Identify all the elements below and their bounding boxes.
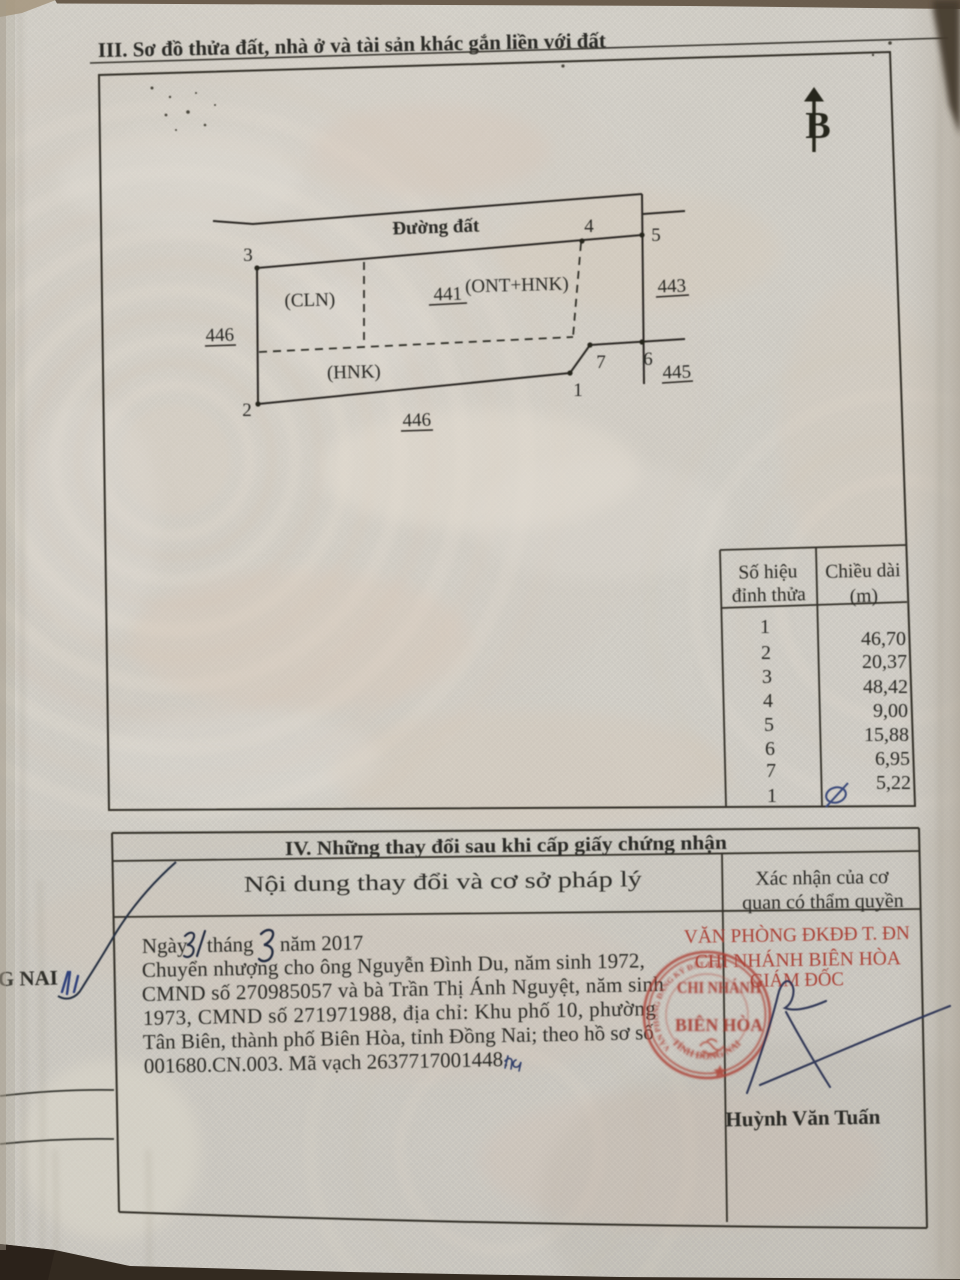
svg-text:445: 445 [662,362,691,384]
svg-text:tháng: tháng [207,932,255,957]
svg-text:7: 7 [596,352,606,373]
svg-text:2: 2 [761,642,771,664]
svg-text:441: 441 [433,284,462,306]
svg-text:(m): (m) [850,586,879,608]
svg-text:(CLN): (CLN) [284,289,335,311]
svg-text:CHI NHÁNH: CHI NHÁNH [677,978,761,997]
svg-text:446: 446 [205,325,234,347]
svg-text:1: 1 [767,785,777,807]
svg-text:6: 6 [643,349,653,370]
svg-text:(ONT+HNK): (ONT+HNK) [465,274,569,298]
svg-text:1: 1 [760,616,770,638]
svg-text:Ngày: Ngày [142,933,188,958]
svg-text:4: 4 [763,690,773,712]
svg-text:1: 1 [573,380,583,401]
svg-text:5: 5 [651,225,661,246]
svg-text:7: 7 [766,760,776,782]
svg-text:6: 6 [765,738,775,760]
svg-text:5: 5 [764,714,774,736]
svg-text:B: B [805,105,830,147]
svg-text:48,42: 48,42 [863,676,908,698]
svg-text:Số hiệu: Số hiệu [738,561,798,583]
svg-text:46,70: 46,70 [861,628,906,650]
svg-text:443: 443 [657,276,686,298]
svg-text:Huỳnh Văn Tuấn: Huỳnh Văn Tuấn [725,1105,881,1132]
svg-text:446: 446 [402,410,431,432]
svg-text:Đường đất: Đường đất [392,215,480,239]
svg-text:(HNK): (HNK) [327,361,381,383]
svg-text:Chiều dài: Chiều dài [825,560,901,583]
svg-text:quan có thẩm quyền: quan có thẩm quyền [742,890,904,914]
svg-text:6,95: 6,95 [875,748,910,770]
svg-text:2: 2 [242,400,252,421]
svg-text:20,37: 20,37 [862,651,907,673]
svg-text:3: 3 [762,666,772,688]
svg-text:9,00: 9,00 [873,700,908,722]
svg-text:BIÊN HÒA: BIÊN HÒA [675,1014,763,1035]
svg-text:năm 2017: năm 2017 [280,930,364,956]
svg-text:5,22: 5,22 [876,772,911,794]
svg-text:đỉnh thửa: đỉnh thửa [732,584,807,607]
svg-text:Xác nhận của cơ: Xác nhận của cơ [755,866,889,890]
svg-text:VĂN PHÒNG ĐKĐĐ T. ĐN: VĂN PHÒNG ĐKĐĐ T. ĐN [684,922,910,948]
svg-text:15,88: 15,88 [864,724,909,746]
svg-text:4: 4 [584,216,594,237]
svg-text:3: 3 [243,245,253,266]
